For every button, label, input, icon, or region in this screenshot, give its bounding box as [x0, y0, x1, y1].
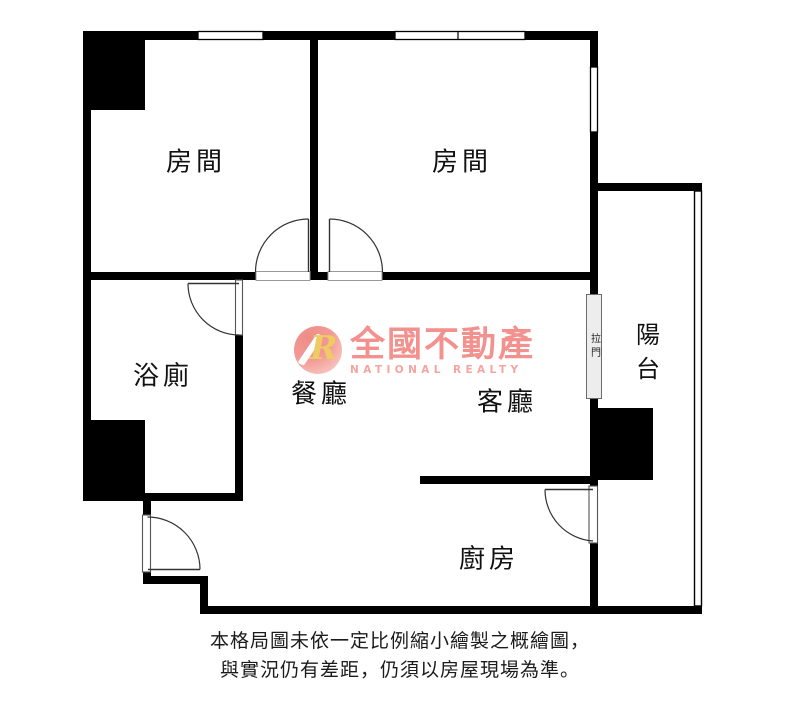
label-bedroom-left: 房間: [166, 142, 226, 179]
door-frame-entrance: [143, 515, 151, 572]
sliding-door-label: 拉門: [587, 333, 602, 361]
door-threshold-bedroom-right: [328, 272, 382, 281]
door-arc-entrance: [148, 517, 201, 570]
door-arc-kitchen: [545, 490, 593, 542]
disclaimer-line2: 與實況仍有差距，仍須以房屋現場為準。: [0, 656, 800, 685]
label-kitchen: 廚房: [459, 539, 519, 576]
door-arc-bedroom-right: [330, 219, 383, 272]
brand-emblem-icon: R: [294, 326, 342, 374]
disclaimer-text: 本格局圖未依一定比例縮小繪製之概繪圖， 與實況仍有差距，仍須以房屋現場為準。: [0, 627, 800, 685]
balcony-railing: [695, 191, 702, 606]
window-bedroom-right-side: [591, 67, 598, 132]
label-bedroom-right: 房間: [432, 142, 492, 179]
door-arc-bedroom-left: [256, 219, 309, 272]
window-bedroom-right: [395, 32, 525, 40]
window-bedroom-left: [198, 32, 263, 40]
door-frame-bathroom: [236, 280, 243, 335]
sliding-door: 拉門: [586, 294, 602, 399]
brand-name-en: NATIONAL REALTY: [350, 364, 535, 376]
disclaimer-line1: 本格局圖未依一定比例縮小繪製之概繪圖，: [0, 627, 800, 656]
label-bathroom: 浴廁: [133, 356, 193, 393]
watermark-logo: R 全國不動產 NATIONAL REALTY: [294, 326, 535, 376]
label-dining: 餐廳: [291, 374, 351, 411]
brand-text: 全國不動產 NATIONAL REALTY: [350, 326, 535, 376]
door-frame-kitchen: [589, 486, 598, 543]
door-threshold-bedroom-left: [256, 272, 310, 281]
emblem-monogram: R: [310, 328, 337, 367]
door-arc-bathroom: [188, 284, 240, 336]
floorplan: 拉門 房間 房間 浴廁 餐廳 客廳 廚房 陽台 R 全國不動產 NATIONAL…: [0, 0, 800, 714]
brand-name-zh: 全國不動產: [350, 326, 535, 364]
label-balcony: 陽台: [629, 322, 664, 390]
label-living: 客廳: [477, 382, 537, 419]
